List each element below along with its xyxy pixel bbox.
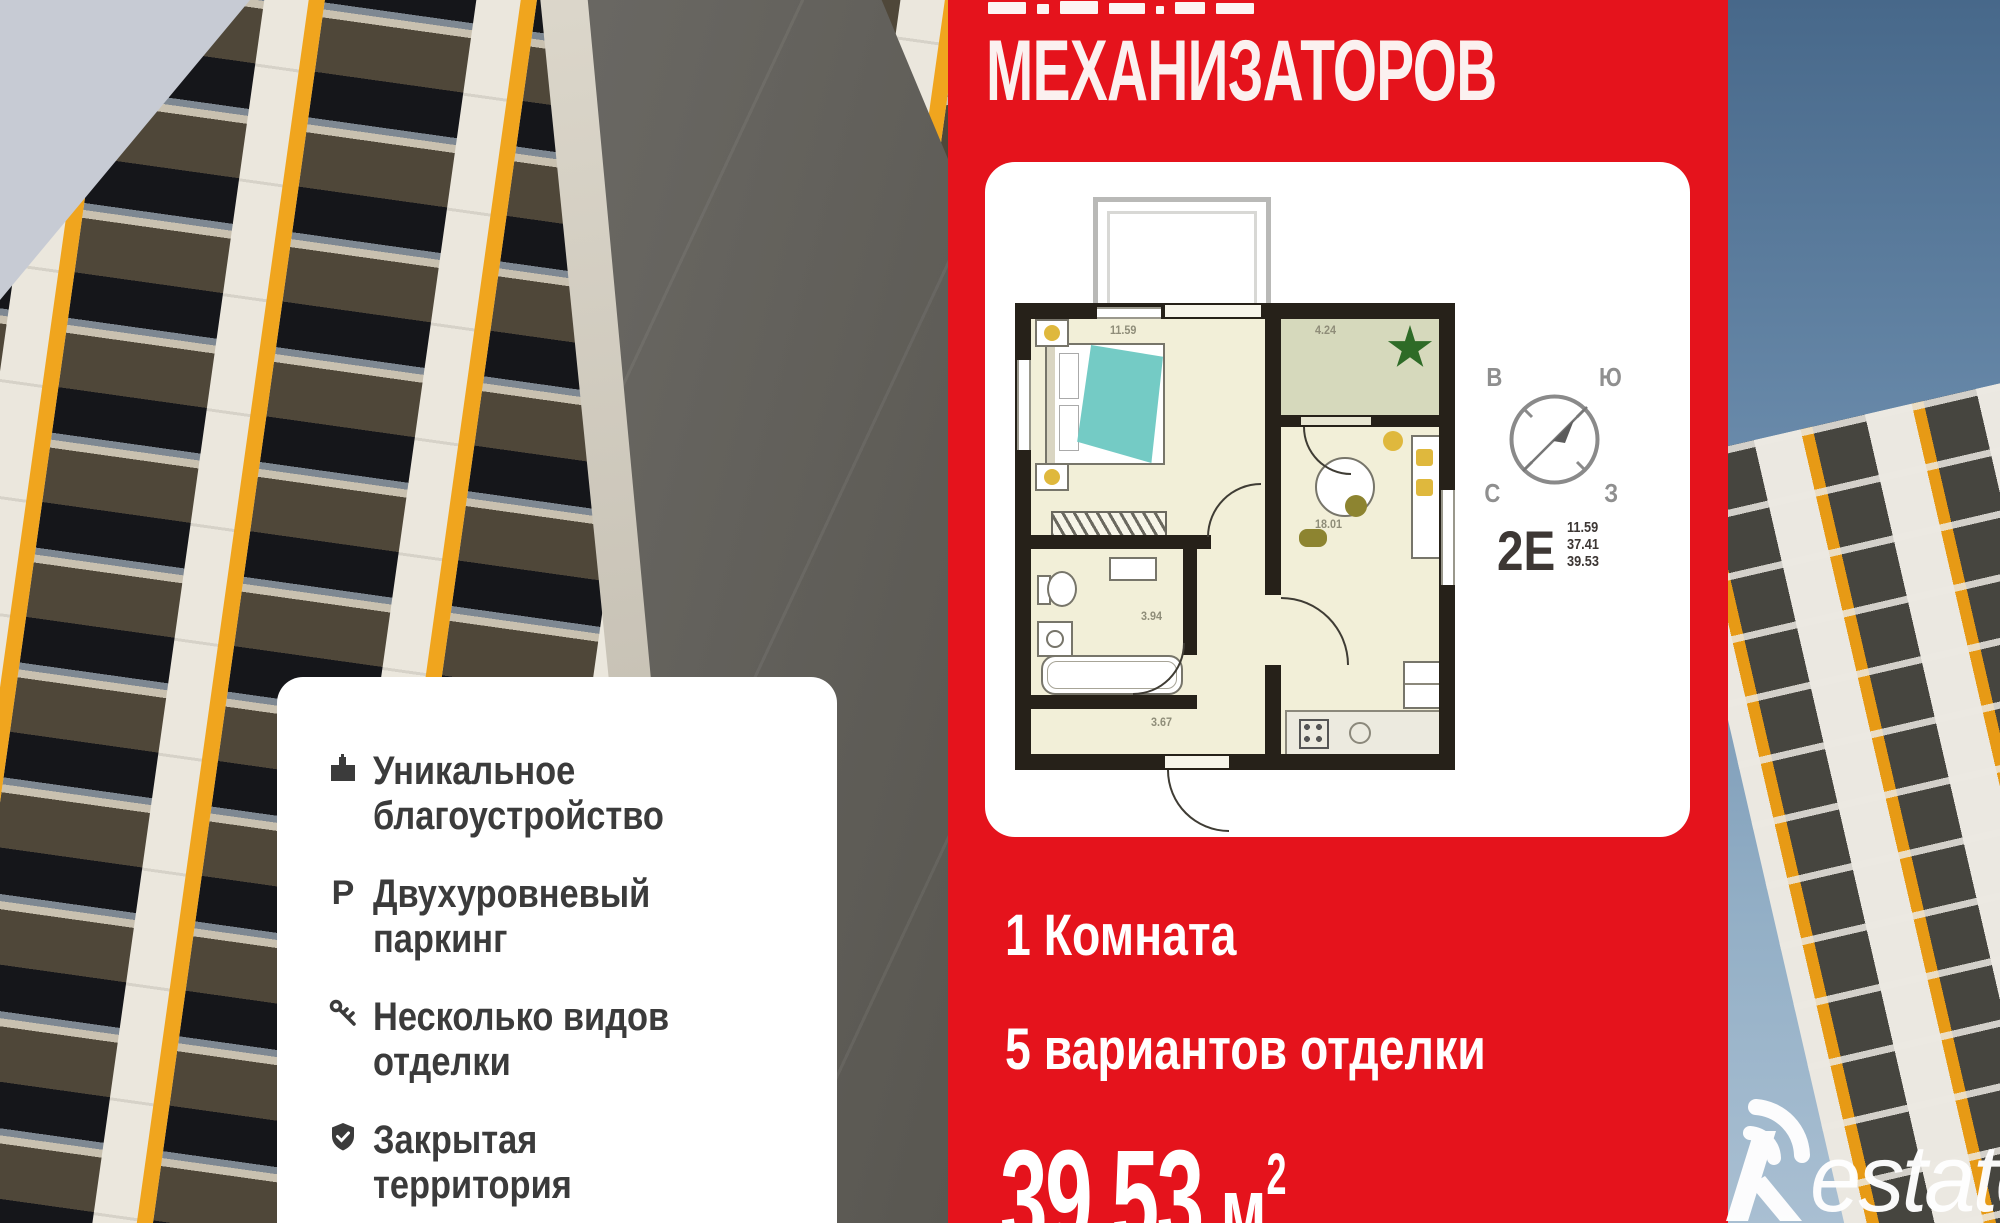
- nightstand: [1035, 463, 1069, 491]
- total-area: 39.53 м2: [1000, 1120, 1286, 1223]
- kitchen-counter: [1285, 710, 1441, 758]
- sofa: [1411, 435, 1441, 559]
- parking-icon: Р: [325, 875, 361, 911]
- feature-item: Закрытая территория: [325, 1118, 837, 1208]
- compass-south-label: Ю: [1599, 362, 1622, 393]
- entrance-opening: [1165, 756, 1229, 768]
- bed-headboard: [1047, 345, 1055, 463]
- window-right: [1441, 490, 1455, 585]
- building-facade-right: [1728, 334, 2000, 1223]
- stove: [1299, 719, 1329, 749]
- compass-west-label: З: [1604, 478, 1618, 509]
- toilet: [1047, 571, 1077, 607]
- feature-label: Несколько видов: [373, 995, 669, 1040]
- unit-type-code: 2Е: [1497, 518, 1555, 583]
- chair: [1383, 431, 1403, 451]
- bedroom-window: [1097, 307, 1161, 319]
- entrance-door-arc: [1167, 770, 1229, 832]
- loggia-area-label: 4.24: [1315, 323, 1336, 337]
- complex-name: МЕХАНИЗАТОРОВ: [986, 22, 1497, 121]
- features-card: Уникальное благоустройство Р Двухуровнев…: [277, 677, 837, 1223]
- feature-label: паркинг: [373, 917, 650, 962]
- info-panel: МЕХАНИЗАТОРОВ: [948, 0, 1728, 1223]
- restate-logo-mark: [1692, 1093, 1820, 1223]
- compass-east-label: В: [1486, 362, 1502, 393]
- building-photo-right: [1728, 0, 2000, 1223]
- floor-plan: 11.59 4.24 18.01 3.94 3.67: [1015, 195, 1455, 835]
- shield-check-icon: [325, 1121, 361, 1157]
- fridge: [1403, 661, 1441, 709]
- building-icon: [325, 752, 361, 788]
- wall-middle-lower: [1265, 665, 1281, 770]
- kitchen-area-label: 18.01: [1315, 517, 1342, 531]
- wall-bedroom-bottom: [1031, 535, 1211, 549]
- pouf: [1299, 529, 1327, 547]
- unit-areas: 11.59 37.41 39.53: [1567, 519, 1599, 570]
- living-area-value: 11.59: [1567, 519, 1599, 536]
- area-without-balcony-value: 37.41: [1567, 536, 1599, 553]
- feature-label: отделки: [373, 1040, 669, 1085]
- compass-icon: [1507, 392, 1602, 487]
- nightstand: [1035, 319, 1069, 347]
- total-area-exponent: 2: [1266, 1142, 1286, 1207]
- wall-bottom: [1015, 754, 1455, 770]
- hallway-area-label: 3.67: [1151, 715, 1172, 729]
- room-count: 1 Комната: [1005, 902, 1236, 969]
- feature-item: Несколько видов отделки: [325, 995, 837, 1085]
- floor-plan-card: 11.59 4.24 18.01 3.94 3.67 В Ю С З 2Е: [985, 162, 1690, 837]
- feature-label: благоустройство: [373, 794, 664, 839]
- wall-bath-right: [1183, 549, 1197, 655]
- kitchen-sink: [1349, 722, 1371, 744]
- key-icon: [325, 998, 361, 1034]
- washer-door: [1046, 630, 1064, 648]
- total-area-unit: м: [1221, 1156, 1267, 1223]
- pillow: [1059, 353, 1079, 399]
- chair: [1345, 495, 1367, 517]
- restate-logo-text: estate: [1810, 1135, 2000, 1223]
- restate-watermark: estate: [1692, 1093, 2000, 1223]
- finish-variants: 5 вариантов отделки: [1005, 1016, 1486, 1083]
- loggia-door-opening: [1301, 417, 1371, 425]
- compass-north-label: С: [1484, 478, 1500, 509]
- bed: [1045, 343, 1165, 465]
- ad-banner: МЕХАНИЗАТОРОВ: [0, 0, 2000, 1223]
- feature-label: Двухуровневый: [373, 872, 650, 917]
- pillow: [1059, 405, 1079, 451]
- feature-label: Уникальное: [373, 749, 664, 794]
- feature-label: территория: [373, 1163, 572, 1208]
- feature-item: Уникальное благоустройство: [325, 749, 837, 839]
- window-left: [1017, 360, 1031, 450]
- bathroom-area-label: 3.94: [1141, 609, 1162, 623]
- sink: [1109, 557, 1157, 581]
- complex-name-top-row-clipped: [988, 0, 1254, 14]
- feature-label: Закрытая: [373, 1118, 572, 1163]
- feature-item: Р Двухуровневый паркинг: [325, 872, 837, 962]
- washing-machine: [1037, 621, 1073, 657]
- bedroom-area-label: 11.59: [1110, 323, 1136, 337]
- balcony: [1093, 197, 1271, 312]
- total-area-number: 39.53: [1000, 1122, 1202, 1223]
- wall-middle-upper: [1265, 319, 1281, 595]
- wall-bath-bottom: [1031, 695, 1197, 709]
- total-area-value: 39.53: [1567, 553, 1599, 570]
- balcony-door-opening: [1165, 305, 1261, 317]
